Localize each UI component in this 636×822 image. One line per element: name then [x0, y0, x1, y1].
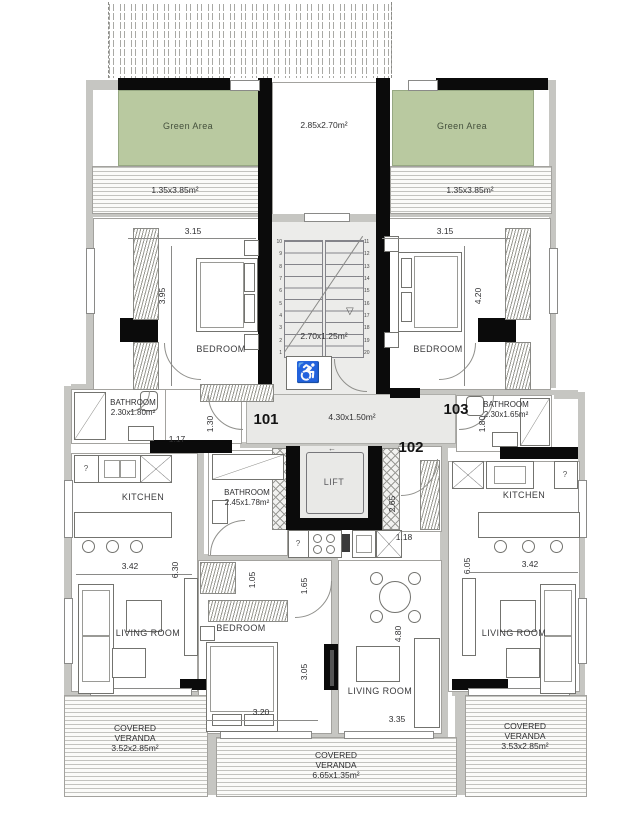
unit-103-depth-dim: 6.05 — [462, 553, 472, 579]
sink-101 — [128, 426, 154, 441]
wall-black-top-left — [118, 78, 230, 90]
wall-black-lift-bottom — [286, 518, 382, 530]
wardrobe-102-corner — [200, 562, 236, 594]
burner-102-1 — [313, 534, 322, 543]
veranda-top-left-dim: 1.35x3.85m² — [151, 185, 198, 195]
nightstand-101-bottom — [244, 334, 259, 350]
window-bedroom-101 — [86, 248, 95, 314]
rug-102 — [356, 646, 400, 682]
window-living-103 — [578, 598, 587, 664]
sofa-102 — [414, 638, 440, 728]
dim-line-420-103 — [464, 246, 465, 386]
stair-landing-railing — [304, 213, 350, 222]
dining-chair-102-se — [408, 610, 421, 623]
tv-unit-103 — [462, 578, 476, 656]
bathroom-102-dim: 2.45x1.78m² — [225, 498, 269, 507]
stair-terrace-dim-label: 2.85x2.70m² — [300, 120, 347, 130]
kitchen-103-label: KITCHEN — [503, 490, 545, 500]
kitchen-103-island — [478, 512, 580, 538]
wheelchair-icon: ♿ — [288, 356, 328, 388]
wall-black-bath103-divider — [500, 447, 578, 459]
unit-102-dim-480: 4.80 — [393, 621, 403, 647]
floor-plan: 10987654321 11121314151617181920 ▽ 2.70x… — [0, 0, 636, 822]
veranda-101-line2: VERANDA — [114, 733, 155, 743]
chaise-103 — [506, 648, 540, 678]
bedroom-103-label: BEDROOM — [413, 344, 462, 354]
window-bedroom-103 — [549, 248, 558, 314]
appliance-101-mark: ? — [74, 455, 98, 481]
kitchen-103-oven-inner — [494, 466, 526, 484]
hallway-dim-label: 4.30x1.50m² — [328, 412, 375, 422]
wardrobe-103-lower — [505, 342, 531, 390]
unit-101-number: 101 — [253, 411, 278, 428]
veranda-103-line1: COVERED — [504, 721, 546, 731]
sofa-103-cushion-2 — [544, 636, 572, 682]
wardrobe-101-upper — [133, 228, 159, 320]
stool-101-2 — [106, 540, 119, 553]
kitchen-101-sink-bowl-1 — [104, 460, 120, 478]
lift-shaft-cavity-right — [382, 448, 400, 530]
dim-line-320-102 — [206, 720, 318, 721]
window-kitchen-101 — [64, 480, 73, 538]
stair-down-arrow-icon: ▽ — [346, 306, 354, 317]
bathroom-101-label: BATHROOM — [110, 398, 156, 407]
dining-chair-102-sw — [370, 610, 383, 623]
bathtub-102 — [212, 454, 284, 480]
unit-101-depth-dim: 6.30 — [170, 557, 180, 583]
burner-102-2 — [326, 534, 335, 543]
wall-black-top-right — [436, 78, 548, 90]
bed-101-pillow-2 — [244, 294, 255, 323]
unit-102-dim-265: 2.65 — [387, 491, 397, 517]
wall-black-wardrobe-101 — [120, 318, 158, 342]
bathroom-103-dim: 2.30x1.65m² — [484, 410, 528, 419]
wall-black-hall-right — [390, 388, 420, 398]
dining-chair-102-ne — [408, 572, 421, 585]
tv-102 — [330, 650, 334, 686]
sofa-101-cushion-2 — [82, 636, 110, 682]
living-101-label: LIVING ROOM — [116, 628, 180, 638]
lift-label: LIFT — [306, 452, 362, 512]
chaise-101 — [112, 648, 146, 678]
dim-line-342-103 — [470, 572, 578, 573]
window-living-101 — [64, 598, 73, 664]
bathroom-103-label: BATHROOM — [483, 400, 529, 409]
dim-line-315-101 — [128, 238, 256, 239]
bed-103-pillow-1 — [401, 258, 412, 288]
tv-unit-101 — [184, 578, 198, 656]
wardrobe-103-upper — [505, 228, 531, 320]
stair-numbers-left: 10987654321 — [274, 240, 282, 356]
wardrobe-102-wall — [208, 600, 288, 622]
dim-line-395-101 — [171, 246, 172, 386]
kitchen-103-width-dim: 3.42 — [522, 559, 539, 569]
wall-gray-left-upper — [86, 80, 93, 388]
window-top-left-gap — [230, 80, 260, 91]
bathroom-101-dim: 2.30x1.80m² — [111, 408, 155, 417]
kitchen-101-width-dim: 3.42 — [122, 561, 139, 571]
veranda-102-line2: VERANDA — [315, 760, 356, 770]
bed-101-mattress — [200, 262, 244, 328]
wardrobe-101-depth-dim: 1.30 — [205, 411, 215, 437]
stair-dim-label: 2.70x1.25m² — [300, 331, 347, 341]
stool-103-3 — [550, 540, 563, 553]
nightstand-103-bottom — [384, 332, 399, 348]
veranda-102-dim: 6.65x1.35m² — [312, 770, 359, 780]
stool-101-1 — [82, 540, 95, 553]
pergola-dashed-canopy — [108, 2, 392, 78]
unit-102-dim-105: 1.05 — [247, 567, 257, 593]
bed-102-mattress — [210, 646, 274, 712]
wall-black-stair-left — [258, 78, 272, 394]
appliance-102-dark-unit — [342, 534, 350, 552]
sliding-door-living-102 — [344, 731, 434, 739]
dining-table-102 — [379, 581, 411, 613]
unit-102-dim-320: 3.20 — [253, 707, 270, 717]
unit-102-number: 102 — [398, 439, 423, 456]
wall-black-wardrobe-103 — [478, 318, 516, 342]
green-area-right-label: Green Area — [437, 121, 487, 131]
bedroom-101-label: BEDROOM — [196, 344, 245, 354]
bed-103-pillow-2 — [401, 292, 412, 322]
veranda-103-dim: 3.53x2.85m² — [501, 741, 548, 751]
window-top-right-gap — [408, 80, 438, 91]
stool-103-1 — [494, 540, 507, 553]
stool-103-2 — [522, 540, 535, 553]
burner-102-4 — [326, 545, 335, 554]
veranda-103-line2: VERANDA — [504, 731, 545, 741]
stair-numbers-right: 11121314151617181920 — [364, 240, 372, 356]
wardrobe-101-lower — [133, 342, 159, 390]
stool-101-3 — [130, 540, 143, 553]
sink-103 — [492, 432, 518, 447]
bedroom-101-width-dim: 3.15 — [185, 226, 202, 236]
burner-102-3 — [313, 545, 322, 554]
bedroom-103-width-dim: 3.15 — [437, 226, 454, 236]
unit-103-number: 103 — [443, 401, 468, 418]
bed-103-mattress — [414, 256, 458, 328]
kitchen-103-hob — [452, 461, 484, 489]
appliance-102-mark: ? — [288, 530, 308, 556]
stair-terrace-floor — [272, 82, 378, 216]
kitchen-102-oven-inner — [356, 535, 372, 553]
shower-101 — [74, 392, 106, 440]
kitchen-101-sink-bowl-2 — [120, 460, 136, 478]
living-102-label: LIVING ROOM — [348, 686, 412, 696]
veranda-101-line1: COVERED — [114, 723, 156, 733]
unit-102-dim-118: 1.18 — [396, 532, 413, 542]
sofa-103-cushion-1 — [544, 590, 572, 636]
appliance-103-mark: ? — [554, 461, 576, 487]
kitchen-102-hob — [308, 530, 342, 558]
unit-102-dim-335: 3.35 — [389, 714, 406, 724]
veranda-101-dim: 3.52x2.85m² — [111, 743, 158, 753]
bedroom-103-height-dim: 4.20 — [473, 283, 483, 309]
lift-door-arrow-icon: ← — [328, 444, 336, 453]
veranda-top-right-dim: 1.35x3.85m² — [446, 185, 493, 195]
bed-101-pillow-1 — [244, 263, 255, 292]
nightstand-102 — [200, 626, 215, 641]
bedroom-102-label: BEDROOM — [216, 623, 265, 633]
veranda-102-line1: COVERED — [315, 750, 357, 760]
dining-chair-102-nw — [370, 572, 383, 585]
bathroom-102-label: BATHROOM — [224, 488, 270, 497]
wall-black-bath101-divider — [150, 440, 232, 453]
living-103-label: LIVING ROOM — [482, 628, 546, 638]
unit-102-dim-165: 1.65 — [299, 573, 309, 599]
sofa-101-cushion-1 — [82, 590, 110, 636]
green-area-left-label: Green Area — [163, 121, 213, 131]
entry-101-dim: 1.17 — [169, 434, 186, 444]
nightstand-101-top — [244, 240, 259, 256]
sliding-door-bedroom-102 — [220, 731, 312, 739]
kitchen-101-label: KITCHEN — [122, 492, 164, 502]
bedroom-101-height-dim: 3.95 — [157, 283, 167, 309]
kitchen-101-island — [74, 512, 172, 538]
unit-102-dim-305: 3.05 — [299, 659, 309, 685]
bathroom-103-door-dim: 1.80 — [477, 411, 487, 437]
dim-line-315-103 — [382, 238, 510, 239]
kitchen-101-hob — [140, 455, 172, 483]
